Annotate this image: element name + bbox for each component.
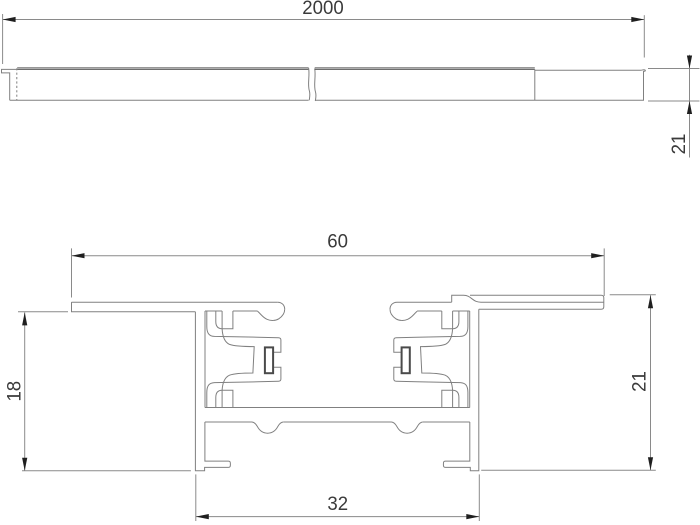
svg-text:21: 21 bbox=[629, 371, 651, 392]
svg-text:32: 32 bbox=[327, 493, 348, 515]
svg-text:60: 60 bbox=[327, 231, 348, 253]
svg-text:18: 18 bbox=[4, 381, 26, 402]
svg-text:2000: 2000 bbox=[302, 0, 343, 19]
svg-text:21: 21 bbox=[669, 134, 691, 155]
